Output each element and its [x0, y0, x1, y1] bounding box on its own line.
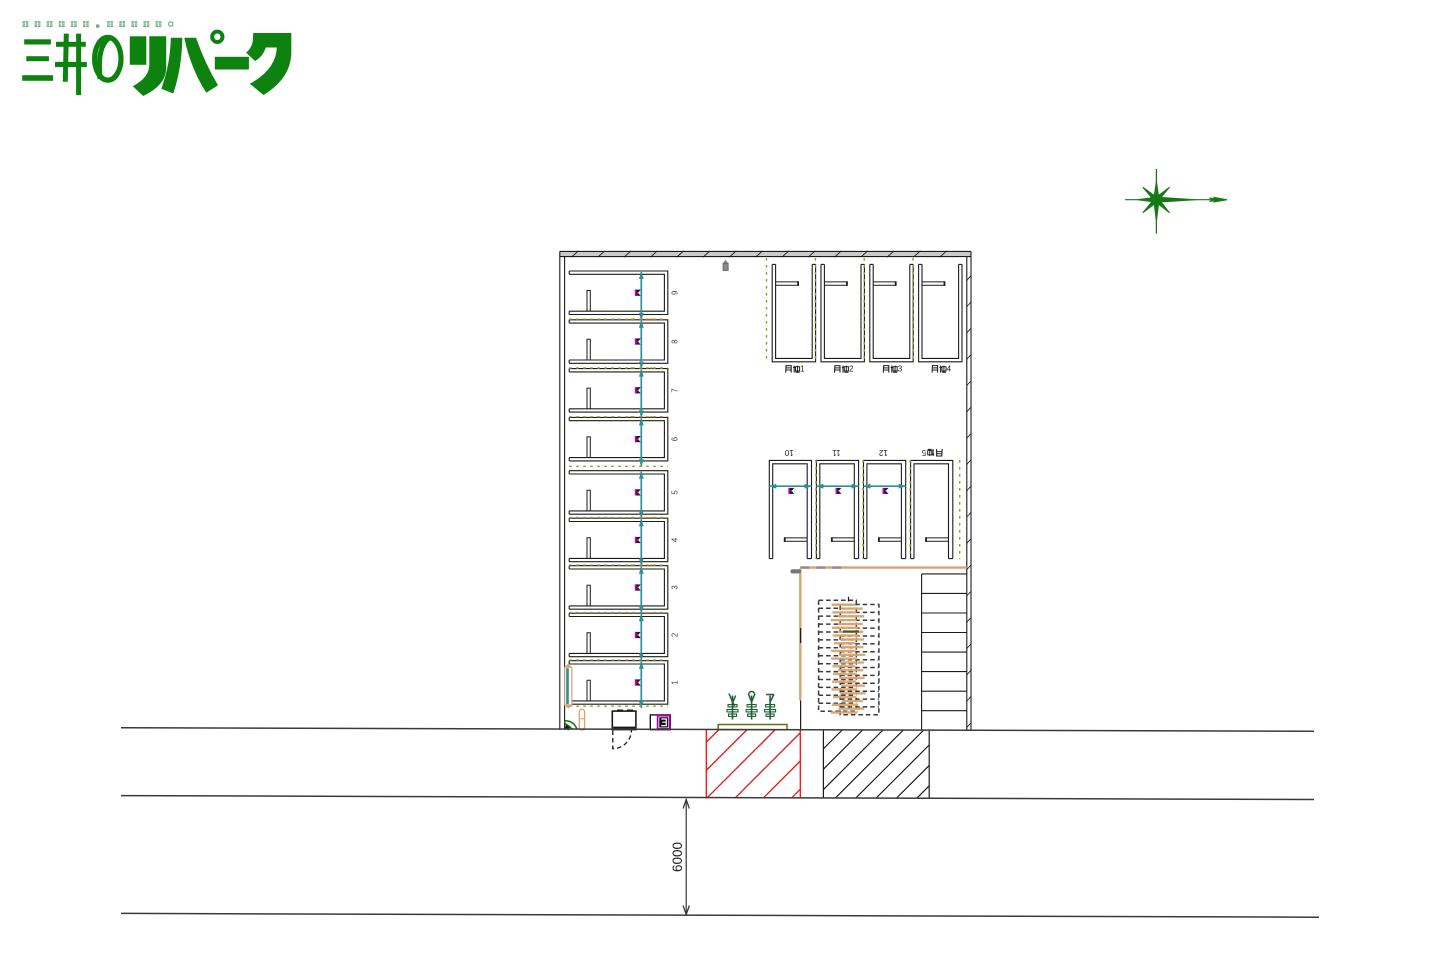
- svg-text:2: 2: [670, 633, 679, 637]
- svg-text:3: 3: [898, 365, 903, 374]
- svg-text:10: 10: [784, 448, 793, 457]
- svg-text:1: 1: [670, 680, 679, 684]
- svg-text:5: 5: [670, 490, 679, 495]
- svg-text:6: 6: [670, 437, 679, 441]
- svg-text:2: 2: [849, 365, 854, 374]
- svg-text:6000: 6000: [670, 842, 685, 872]
- svg-text:4: 4: [947, 365, 952, 374]
- svg-text:7: 7: [670, 388, 679, 392]
- svg-text:3: 3: [670, 585, 679, 589]
- svg-text:9: 9: [670, 291, 679, 295]
- svg-text:8: 8: [670, 339, 679, 343]
- svg-text:11: 11: [832, 448, 841, 457]
- svg-text:5: 5: [921, 448, 926, 457]
- svg-text:12: 12: [878, 448, 887, 457]
- svg-text:1: 1: [800, 365, 805, 374]
- svg-text:4: 4: [670, 537, 679, 542]
